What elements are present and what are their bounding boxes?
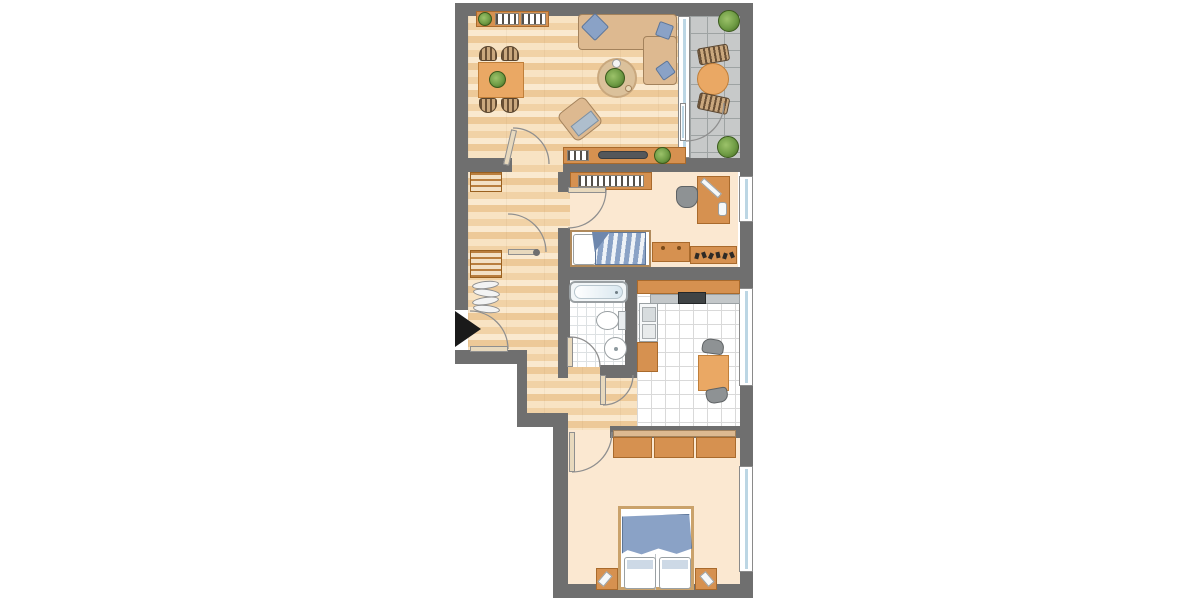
floor-plan-canvas bbox=[0, 0, 1200, 600]
arc-bathroom-door bbox=[570, 337, 600, 367]
arc-entrance-door bbox=[470, 311, 508, 349]
arc-hall-middle-door bbox=[508, 214, 546, 252]
arc-balcony-door bbox=[686, 103, 724, 141]
arc-kitchen-door bbox=[603, 375, 633, 405]
door-swing-arcs bbox=[0, 0, 1200, 600]
arc-living-hall-door bbox=[513, 128, 549, 164]
arc-kids-room-door bbox=[568, 190, 606, 228]
arc-bedroom-door bbox=[572, 432, 612, 472]
